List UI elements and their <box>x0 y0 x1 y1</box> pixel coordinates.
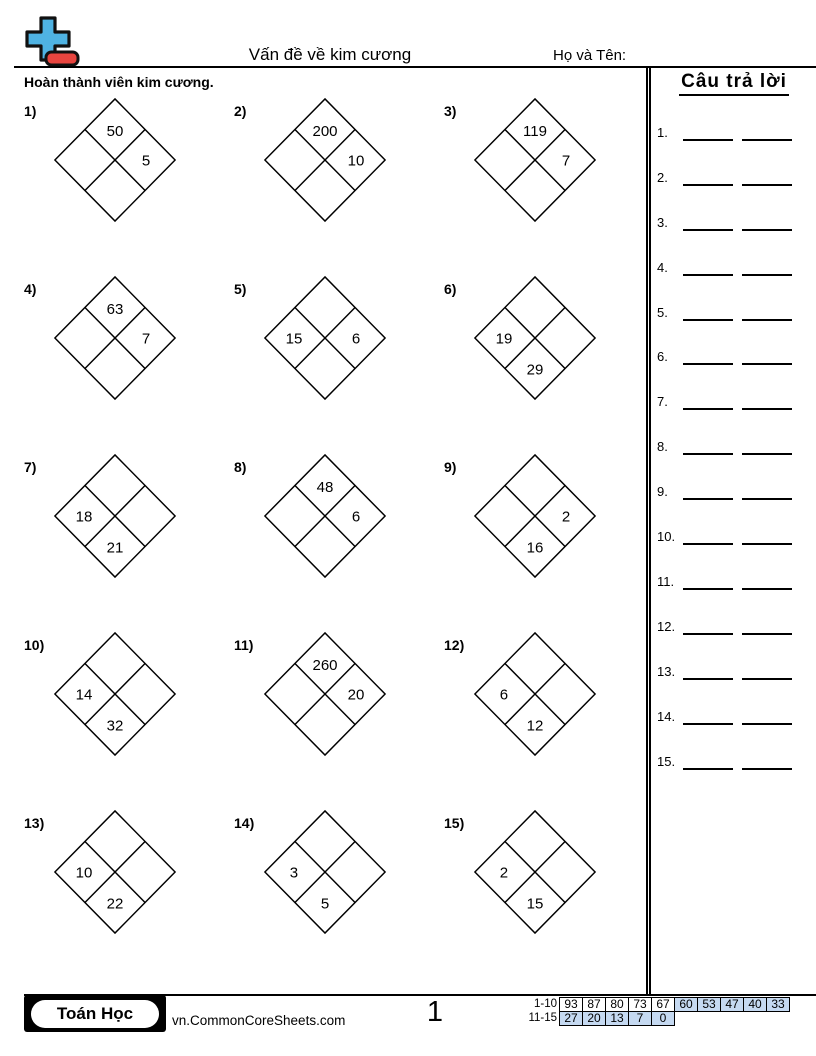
answer-number: 1. <box>657 124 683 141</box>
problem-number: 4) <box>24 274 52 297</box>
diamond-cell-top: 63 <box>107 301 124 318</box>
answer-blank-1 <box>683 707 733 725</box>
problem-15: 15) 15 2 <box>444 808 648 936</box>
answer-row-4: 4. <box>657 259 792 276</box>
answer-row-3: 3. <box>657 214 792 231</box>
diamond-cell-bottom: 32 <box>107 717 124 734</box>
answer-blank-1 <box>683 123 733 141</box>
diamond-cell-right: 5 <box>142 152 150 169</box>
answer-row-14: 14. <box>657 708 792 725</box>
answer-row-2: 2. <box>657 169 792 186</box>
answer-blank-1 <box>683 527 733 545</box>
diamond-figure: 63 7 <box>52 274 178 402</box>
problem-10: 10) 32 14 <box>24 630 228 758</box>
diamond-figure: 119 7 <box>472 96 598 224</box>
problem-6: 6) 29 19 <box>444 274 648 402</box>
answer-blank-2 <box>742 662 792 680</box>
answer-row-12: 12. <box>657 618 792 635</box>
answer-blank-1 <box>683 168 733 186</box>
problem-number: 7) <box>24 452 52 475</box>
diamond-cell-bottom: 15 <box>527 895 544 912</box>
problem-number: 12) <box>444 630 472 653</box>
problem-9: 9) 2 16 <box>444 452 648 580</box>
answer-blank-1 <box>683 347 733 365</box>
answer-number: 4. <box>657 259 683 276</box>
answer-number: 11. <box>657 573 683 590</box>
answer-number: 10. <box>657 528 683 545</box>
diamond-cell-bottom: 16 <box>527 539 544 556</box>
problem-12: 12) 12 6 <box>444 630 648 758</box>
diamond-cell-left: 19 <box>496 330 513 347</box>
problem-number: 3) <box>444 96 472 119</box>
answer-blank-2 <box>742 617 792 635</box>
answer-number: 8. <box>657 438 683 455</box>
answer-row-9: 9. <box>657 483 792 500</box>
answer-blank-2 <box>742 168 792 186</box>
problem-11: 11) 260 20 <box>234 630 438 758</box>
grade-cell: 27 <box>559 1011 583 1026</box>
answer-blank-2 <box>742 482 792 500</box>
answer-blank-2 <box>742 123 792 141</box>
answer-row-13: 13. <box>657 663 792 680</box>
diamond-cell-bottom: 21 <box>107 539 124 556</box>
answer-blank-1 <box>683 392 733 410</box>
problem-number: 11) <box>234 630 262 653</box>
answer-blank-1 <box>683 437 733 455</box>
answer-number: 15. <box>657 753 683 770</box>
diamond-cell-left: 6 <box>500 686 508 703</box>
diamond-cell-right: 20 <box>348 686 365 703</box>
grade-cell: 7 <box>628 1011 652 1026</box>
problem-5: 5) 6 15 <box>234 274 438 402</box>
problem-3: 3) 119 7 <box>444 96 648 224</box>
problem-number: 1) <box>24 96 52 119</box>
grade-row-1: 1-10 93 87 80 73 67 60 53 47 40 33 <box>521 997 790 1012</box>
diamond-cell-left: 14 <box>76 686 93 703</box>
subject-badge: Toán Học <box>24 995 166 1032</box>
grade-cell: 93 <box>559 997 583 1012</box>
answer-row-5: 5. <box>657 304 792 321</box>
problem-number: 2) <box>234 96 262 119</box>
problem-4: 4) 63 7 <box>24 274 228 402</box>
answer-blank-1 <box>683 617 733 635</box>
problem-number: 14) <box>234 808 262 831</box>
answer-blank-2 <box>742 303 792 321</box>
grade-cell: 73 <box>628 997 652 1012</box>
diamond-figure: 6 15 <box>262 274 388 402</box>
problem-1: 1) 50 5 <box>24 96 228 224</box>
answer-row-6: 6. <box>657 348 792 365</box>
answer-blank-2 <box>742 707 792 725</box>
diamond-cell-left: 3 <box>290 864 298 881</box>
website-text: vn.CommonCoreSheets.com <box>172 1013 345 1028</box>
diamond-figure: 48 6 <box>262 452 388 580</box>
grade-cell: 0 <box>651 1011 675 1026</box>
problem-2: 2) 200 10 <box>234 96 438 224</box>
answer-blank-2 <box>742 258 792 276</box>
problem-number: 9) <box>444 452 472 475</box>
diamond-figure: 32 14 <box>52 630 178 758</box>
answer-row-11: 11. <box>657 573 792 590</box>
diamond-cell-top: 50 <box>107 123 124 140</box>
problem-number: 15) <box>444 808 472 831</box>
header-divider <box>14 66 816 68</box>
diamond-cell-bottom: 12 <box>527 717 544 734</box>
answer-blank-2 <box>742 572 792 590</box>
diamond-cell-top: 48 <box>317 479 334 496</box>
diamond-figure: 21 18 <box>52 452 178 580</box>
diamond-cell-left: 18 <box>76 508 93 525</box>
diamond-cell-right: 10 <box>348 152 365 169</box>
instruction-text: Hoàn thành viên kim cương. <box>24 74 214 90</box>
diamond-figure: 29 19 <box>472 274 598 402</box>
grade-cell: 40 <box>743 997 767 1012</box>
diamond-cell-bottom: 29 <box>527 361 544 378</box>
diamond-cell-right: 6 <box>352 508 360 525</box>
diamond-cell-top: 200 <box>312 123 337 140</box>
diamond-cell-bottom: 5 <box>321 895 329 912</box>
problem-number: 13) <box>24 808 52 831</box>
diamond-figure: 22 10 <box>52 808 178 936</box>
diamond-figure: 5 3 <box>262 808 388 936</box>
problem-14: 14) 5 3 <box>234 808 438 936</box>
answer-number: 2. <box>657 169 683 186</box>
page-number: 1 <box>400 996 470 1029</box>
problem-13: 13) 22 10 <box>24 808 228 936</box>
grade-row-2: 11-15 27 20 13 7 0 <box>521 1011 675 1026</box>
subject-badge-label: Toán Học <box>31 1000 159 1028</box>
answer-blank-1 <box>683 303 733 321</box>
diamond-figure: 200 10 <box>262 96 388 224</box>
grade-cell: 53 <box>697 997 721 1012</box>
grade-cell: 80 <box>605 997 629 1012</box>
answer-number: 13. <box>657 663 683 680</box>
answer-blank-1 <box>683 572 733 590</box>
answer-blank-2 <box>742 527 792 545</box>
grade-row-label: 11-15 <box>521 1011 557 1026</box>
diamond-figure: 12 6 <box>472 630 598 758</box>
answer-blank-1 <box>683 482 733 500</box>
diamond-cell-right: 6 <box>352 330 360 347</box>
answer-number: 3. <box>657 214 683 231</box>
answer-blank-2 <box>742 392 792 410</box>
diamond-figure: 50 5 <box>52 96 178 224</box>
answer-number: 12. <box>657 618 683 635</box>
diamond-cell-left: 10 <box>76 864 93 881</box>
answer-blank-2 <box>742 437 792 455</box>
diamond-figure: 15 2 <box>472 808 598 936</box>
diamond-cell-left: 2 <box>500 864 508 881</box>
answer-number: 9. <box>657 483 683 500</box>
grade-cell: 87 <box>582 997 606 1012</box>
problem-8: 8) 48 6 <box>234 452 438 580</box>
problem-number: 5) <box>234 274 262 297</box>
answer-row-7: 7. <box>657 393 792 410</box>
diamond-figure: 2 16 <box>472 452 598 580</box>
grade-cell: 20 <box>582 1011 606 1026</box>
grade-cell: 60 <box>674 997 698 1012</box>
answer-row-1: 1. <box>657 124 792 141</box>
diamond-cell-right: 7 <box>142 330 150 347</box>
diamond-cell-right: 2 <box>562 508 570 525</box>
answer-number: 14. <box>657 708 683 725</box>
answer-number: 6. <box>657 348 683 365</box>
answers-title: Câu trả lời <box>652 71 816 96</box>
diamond-figure: 260 20 <box>262 630 388 758</box>
answer-number: 7. <box>657 393 683 410</box>
answer-blank-1 <box>683 752 733 770</box>
diamond-cell-top: 119 <box>523 123 547 140</box>
grade-cell: 47 <box>720 997 744 1012</box>
answer-row-10: 10. <box>657 528 792 545</box>
problem-number: 8) <box>234 452 262 475</box>
answer-blank-2 <box>742 213 792 231</box>
problem-number: 6) <box>444 274 472 297</box>
answer-row-15: 15. <box>657 753 792 770</box>
problem-7: 7) 21 18 <box>24 452 228 580</box>
diamond-cell-top: 260 <box>312 657 337 674</box>
diamond-cell-right: 7 <box>562 152 570 169</box>
answer-number: 5. <box>657 304 683 321</box>
diamond-cell-bottom: 22 <box>107 895 124 912</box>
grade-cell: 67 <box>651 997 675 1012</box>
answer-blank-1 <box>683 662 733 680</box>
answer-row-8: 8. <box>657 438 792 455</box>
grade-cell: 33 <box>766 997 790 1012</box>
problem-number: 10) <box>24 630 52 653</box>
diamond-cell-left: 15 <box>286 330 303 347</box>
answer-blank-1 <box>683 258 733 276</box>
answer-blank-1 <box>683 213 733 231</box>
grade-cell: 13 <box>605 1011 629 1026</box>
answer-blank-2 <box>742 752 792 770</box>
name-field-label: Họ và Tên: <box>553 47 626 64</box>
grade-row-label: 1-10 <box>521 997 557 1012</box>
answer-blank-2 <box>742 347 792 365</box>
